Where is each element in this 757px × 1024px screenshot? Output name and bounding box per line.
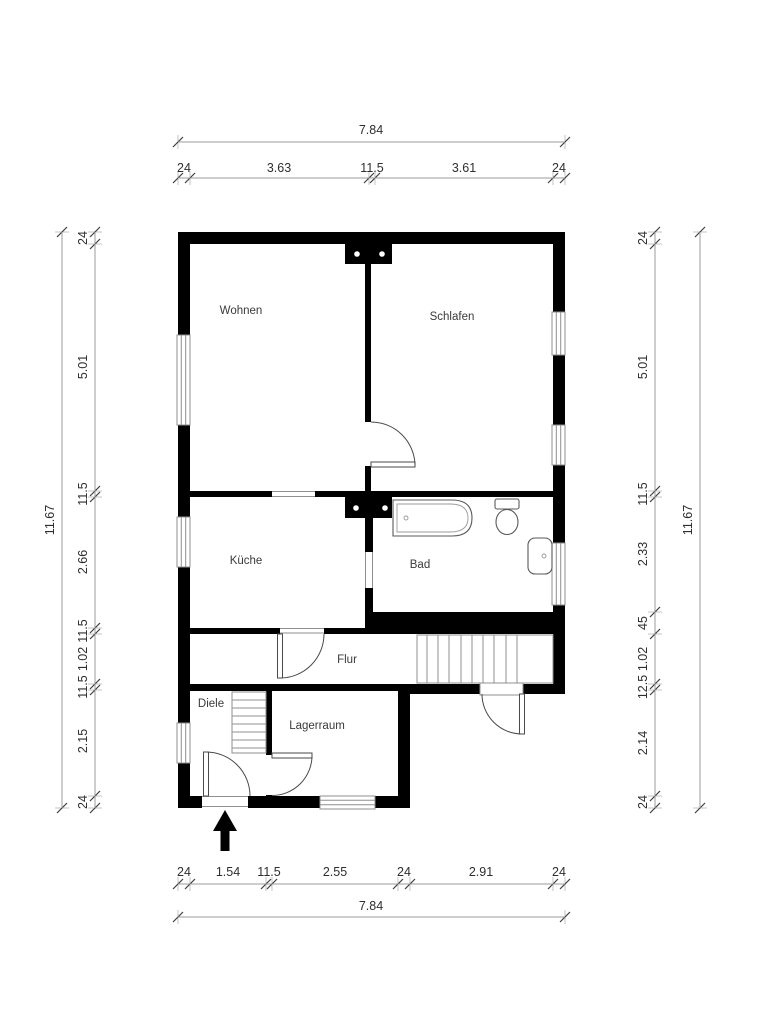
window-bad-right: [551, 543, 566, 605]
dim-right-total: 11.67: [681, 505, 695, 535]
door-flur-exterior: [480, 682, 525, 734]
wall-lagerraum-right: [398, 690, 410, 808]
toilet: [495, 499, 519, 535]
dim-left-seg: 11.5: [76, 619, 90, 642]
dim-bottom-total: 7.84: [359, 899, 383, 913]
door-entrance: [202, 752, 250, 810]
room-label-schlafen: Schlafen: [430, 311, 475, 323]
dim-top-seg: 11.5: [360, 161, 383, 175]
window-kueche-left: [176, 517, 191, 567]
dim-right-seg: 2.33: [636, 542, 650, 566]
door-diele-lagerraum: [265, 753, 312, 796]
dim-right-seg: 24: [636, 231, 650, 245]
dim-left-seg: 2.66: [76, 550, 90, 574]
chimney-top-block: [345, 244, 392, 264]
window-schlafen-right-lower: [551, 425, 566, 465]
chimney-middle: [345, 497, 392, 518]
chimney-flue-dot: [382, 505, 388, 511]
dim-left-seg: 24: [76, 231, 90, 245]
room-label-flur: Flur: [337, 654, 357, 666]
dim-bottom-seg: 11.5: [257, 865, 280, 879]
window-lagerraum-bottom: [320, 795, 375, 810]
dim-left-seg: 2.15: [76, 729, 90, 753]
dim-left-total: 11.67: [43, 505, 57, 535]
washbasin: [528, 538, 552, 574]
room-label-wohnen: Wohnen: [220, 305, 263, 317]
floorplan-drawing: Wohnen Schlafen Küche Bad Flur Diele Lag…: [0, 0, 757, 1024]
chimney-flue-dot: [379, 251, 385, 257]
floorplan-page: Wohnen Schlafen Küche Bad Flur Diele Lag…: [0, 0, 757, 1024]
opening-kueche-bad: [364, 552, 374, 588]
dim-left-seg: 5.01: [76, 355, 90, 379]
chimney-flue-dot: [354, 251, 360, 257]
dim-top-seg: 24: [177, 161, 191, 175]
entrance-arrow-icon: [213, 810, 237, 851]
stairs-flur: [417, 635, 553, 683]
dim-left-seg: 24: [76, 795, 90, 809]
room-label-diele: Diele: [198, 698, 224, 710]
dim-left-seg: 1.02: [76, 647, 90, 671]
dim-right-seg: 11.5: [636, 482, 650, 505]
dim-bottom-seg: 1.54: [216, 865, 240, 879]
dim-top-seg: 3.63: [267, 161, 291, 175]
room-label-bad: Bad: [410, 559, 430, 571]
window-wohnen-left: [176, 335, 191, 425]
dim-right-seg: 1.02: [636, 647, 650, 671]
wall-kueche-bottom: [190, 628, 365, 634]
dim-top-seg: 24: [552, 161, 566, 175]
dim-bottom-seg: 24: [177, 865, 191, 879]
window-diele-left: [176, 723, 191, 763]
door-schlafen: [364, 422, 415, 467]
dim-bottom-seg: 2.55: [323, 865, 347, 879]
wall-top: [178, 232, 565, 244]
door-kueche-flur: [278, 627, 325, 678]
opening-wohnen-kueche: [272, 490, 315, 498]
dim-left-seg: 11.5: [76, 675, 90, 698]
dim-bottom-seg: 24: [397, 865, 411, 879]
wall-flur-bottom-left: [190, 684, 398, 691]
chimney-top: [345, 244, 392, 264]
room-label-kueche: Küche: [230, 555, 263, 567]
dim-top-seg: 3.61: [452, 161, 476, 175]
chimney-flue-dot: [353, 505, 359, 511]
bathtub: [393, 500, 472, 536]
dim-bottom-seg: 24: [552, 865, 566, 879]
dim-top-total: 7.84: [359, 123, 383, 137]
dim-right-seg: 5.01: [636, 355, 650, 379]
dim-right-seg: 12.5: [636, 675, 650, 699]
window-schlafen-right-upper: [551, 312, 566, 355]
dim-left-seg: 11.5: [76, 482, 90, 505]
dim-right-seg: 45: [636, 616, 650, 630]
room-label-lagerraum: Lagerraum: [289, 720, 345, 732]
wall-middle-horizontal: [190, 491, 553, 497]
dim-right-seg: 24: [636, 795, 650, 809]
dim-bottom-seg: 2.91: [469, 865, 493, 879]
stairs-diele: [232, 692, 266, 753]
dim-right-seg: 2.14: [636, 731, 650, 755]
wall-bad-bottom-thick: [373, 612, 553, 634]
